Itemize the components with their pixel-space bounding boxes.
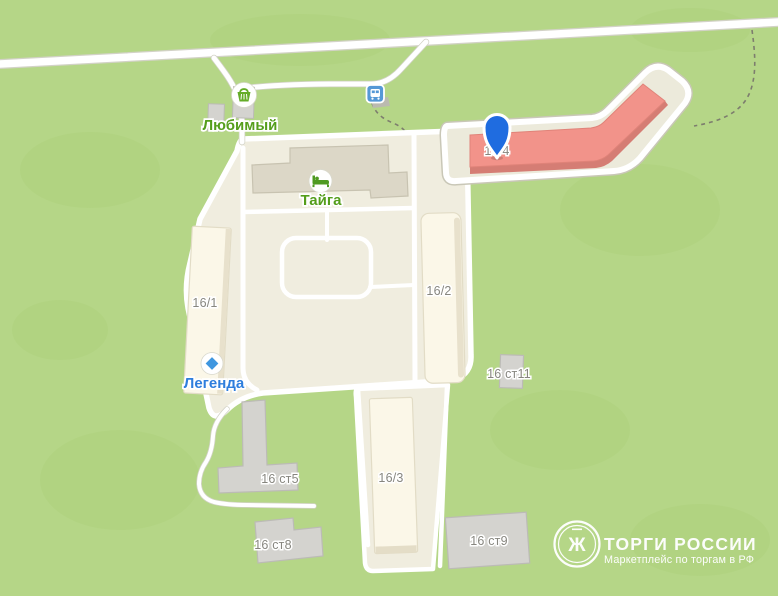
building-label-16-st5: 16 ст5	[261, 472, 299, 486]
watermark-subtitle: Маркетплейс по торгам в РФ	[604, 554, 754, 566]
map-viewport[interactable]: 16/1 16/2 16/3 16/4 16 ст5 16 ст8 16 ст9…	[0, 0, 778, 596]
building-label-16-2: 16/2	[426, 284, 451, 298]
building-label-16-st11: 16 ст11	[487, 367, 531, 381]
building-label-16-1: 16/1	[192, 296, 217, 310]
watermark-title: ТОРГИ РОССИИ	[604, 534, 757, 554]
poi-label-taiga[interactable]: Тайга	[301, 192, 343, 209]
poi-label-lyubimy[interactable]: Любимый	[203, 117, 278, 134]
eagle-crown	[572, 529, 582, 531]
map-canvas[interactable]: 16/1 16/2 16/3 16/4 16 ст5 16 ст8 16 ст9…	[0, 0, 778, 596]
building-label-16-st8: 16 ст8	[254, 538, 292, 552]
building-label-16-st9: 16 ст9	[470, 534, 508, 548]
building-label-16-3: 16/3	[378, 471, 403, 485]
poi-label-legenda[interactable]: Легенда	[184, 375, 245, 392]
eagle-logo-icon: Ж	[567, 535, 586, 556]
